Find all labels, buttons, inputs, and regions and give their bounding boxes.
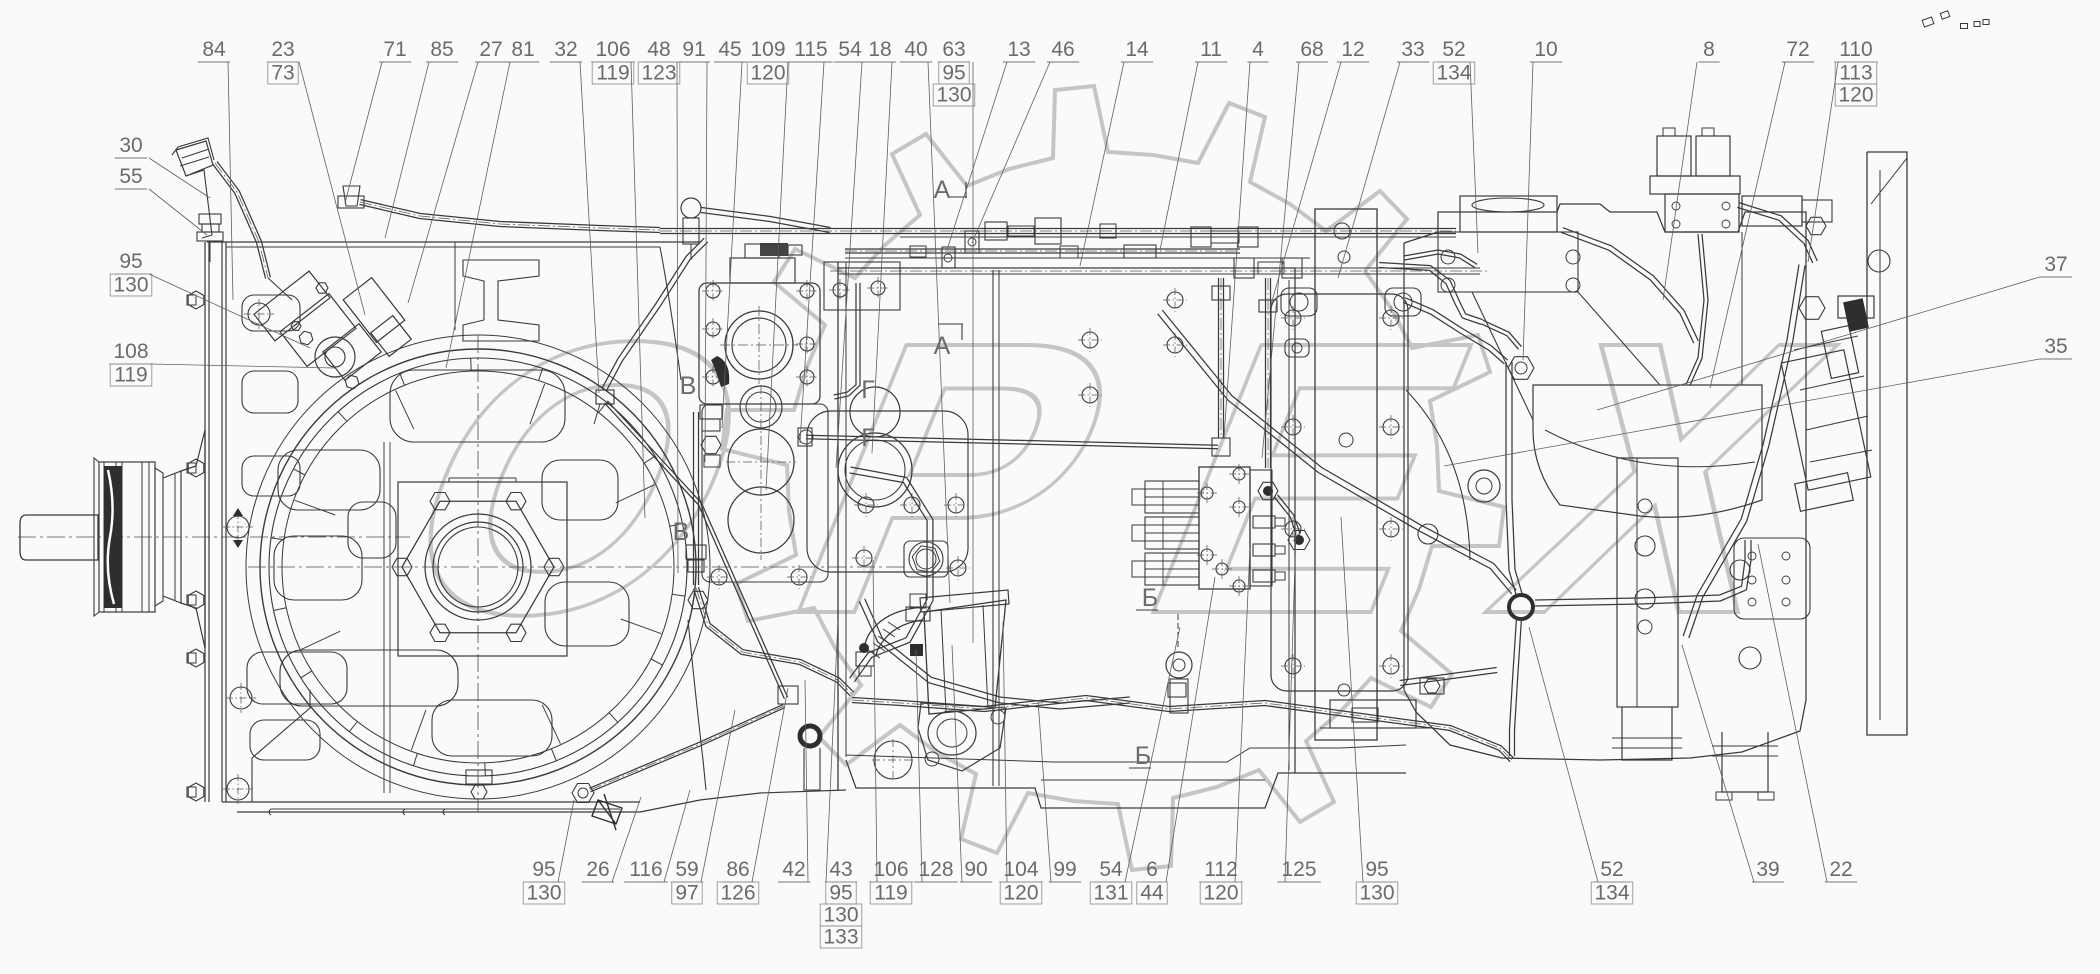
svg-text:55: 55 xyxy=(119,165,142,188)
svg-text:22: 22 xyxy=(1829,858,1852,881)
svg-text:39: 39 xyxy=(1756,858,1779,881)
svg-text:125: 125 xyxy=(1281,858,1316,881)
svg-text:130: 130 xyxy=(113,274,148,297)
svg-text:84: 84 xyxy=(202,38,226,61)
svg-text:Г: Г xyxy=(861,424,875,452)
svg-text:6: 6 xyxy=(1146,858,1158,881)
svg-text:123: 123 xyxy=(641,62,676,85)
svg-text:30: 30 xyxy=(119,134,142,157)
svg-text:119: 119 xyxy=(874,882,907,905)
svg-text:ОРЕХ: ОРЕХ xyxy=(341,261,1978,695)
svg-text:112: 112 xyxy=(1204,858,1237,881)
svg-text:85: 85 xyxy=(430,38,453,61)
svg-text:120: 120 xyxy=(750,62,785,85)
svg-text:90: 90 xyxy=(964,858,987,881)
svg-text:23: 23 xyxy=(271,38,294,61)
svg-text:A: A xyxy=(934,332,951,360)
svg-text:130: 130 xyxy=(823,904,858,927)
svg-text:108: 108 xyxy=(113,340,148,363)
svg-text:54: 54 xyxy=(838,38,862,61)
svg-text:14: 14 xyxy=(1125,38,1149,61)
svg-text:104: 104 xyxy=(1003,858,1038,881)
svg-text:120: 120 xyxy=(1838,84,1873,107)
svg-text:35: 35 xyxy=(2044,335,2067,358)
svg-text:119: 119 xyxy=(596,62,629,85)
svg-text:95: 95 xyxy=(942,62,965,85)
svg-text:95: 95 xyxy=(119,250,142,273)
svg-text:120: 120 xyxy=(1003,882,1038,905)
svg-text:130: 130 xyxy=(526,882,561,905)
svg-text:B: B xyxy=(680,372,697,400)
svg-text:106: 106 xyxy=(595,38,630,61)
svg-text:52: 52 xyxy=(1442,38,1465,61)
svg-text:131: 131 xyxy=(1093,882,1128,905)
svg-text:106: 106 xyxy=(873,858,908,881)
svg-text:116: 116 xyxy=(629,858,662,881)
svg-text:33: 33 xyxy=(1401,38,1424,61)
svg-text:86: 86 xyxy=(726,858,749,881)
svg-text:59: 59 xyxy=(675,858,698,881)
svg-text:42: 42 xyxy=(782,858,805,881)
svg-text:81: 81 xyxy=(511,38,534,61)
svg-text:32: 32 xyxy=(554,38,577,61)
svg-text:13: 13 xyxy=(1007,38,1030,61)
svg-text:120: 120 xyxy=(1203,882,1238,905)
svg-text:63: 63 xyxy=(942,38,965,61)
svg-text:48: 48 xyxy=(647,38,670,61)
svg-text:26: 26 xyxy=(586,858,609,881)
svg-text:A: A xyxy=(934,176,951,204)
svg-text:45: 45 xyxy=(718,38,741,61)
svg-text:54: 54 xyxy=(1099,858,1123,881)
svg-text:37: 37 xyxy=(2044,253,2067,276)
svg-text:B: B xyxy=(673,518,690,546)
svg-text:72: 72 xyxy=(1786,38,1809,61)
svg-text:134: 134 xyxy=(1436,62,1471,85)
svg-text:Б: Б xyxy=(1135,742,1151,770)
svg-text:18: 18 xyxy=(868,38,891,61)
svg-text:134: 134 xyxy=(1594,882,1629,905)
svg-text:95: 95 xyxy=(1365,858,1388,881)
svg-text:95: 95 xyxy=(532,858,555,881)
svg-text:Б: Б xyxy=(1142,584,1158,612)
svg-text:91: 91 xyxy=(682,38,705,61)
svg-text:11: 11 xyxy=(1200,38,1222,61)
svg-text:68: 68 xyxy=(1300,38,1323,61)
svg-text:113: 113 xyxy=(1839,62,1872,85)
svg-text:Г: Г xyxy=(861,376,875,404)
svg-text:73: 73 xyxy=(271,62,294,85)
svg-text:97: 97 xyxy=(675,882,698,905)
svg-text:130: 130 xyxy=(1359,882,1394,905)
svg-text:12: 12 xyxy=(1341,38,1364,61)
svg-text:46: 46 xyxy=(1051,38,1074,61)
svg-text:133: 133 xyxy=(823,926,858,949)
svg-text:99: 99 xyxy=(1053,858,1076,881)
svg-text:95: 95 xyxy=(829,882,852,905)
svg-text:109: 109 xyxy=(750,38,785,61)
svg-text:126: 126 xyxy=(720,882,755,905)
svg-text:27: 27 xyxy=(479,38,502,61)
svg-text:128: 128 xyxy=(918,858,953,881)
svg-text:44: 44 xyxy=(1140,882,1164,905)
svg-text:52: 52 xyxy=(1600,858,1623,881)
svg-text:40: 40 xyxy=(904,38,927,61)
svg-text:119: 119 xyxy=(114,364,147,387)
svg-text:130: 130 xyxy=(936,84,971,107)
svg-text:10: 10 xyxy=(1534,38,1557,61)
svg-text:71: 71 xyxy=(383,38,406,61)
svg-text:110: 110 xyxy=(1839,38,1872,61)
svg-text:8: 8 xyxy=(1703,38,1715,61)
svg-text:4: 4 xyxy=(1252,38,1264,61)
svg-text:115: 115 xyxy=(794,38,827,61)
svg-text:43: 43 xyxy=(829,858,852,881)
